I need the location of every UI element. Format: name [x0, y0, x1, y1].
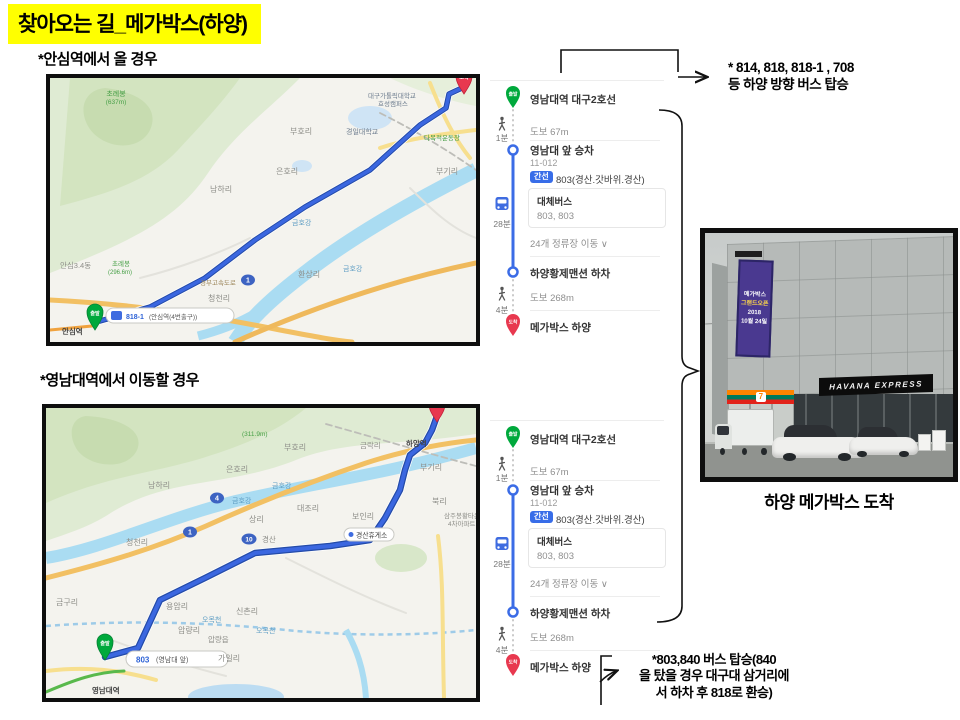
map-place-label: 다목적운동장	[424, 133, 460, 142]
transfer-note: *803,840 버스 탑승(840 을 탔을 경우 대구대 삼거리에 서 하차…	[628, 652, 800, 701]
end-pin-icon: 도착	[506, 314, 520, 336]
map-place-label: 경산	[262, 534, 276, 544]
map-place-label: 4차아파트	[448, 519, 476, 528]
map-place-label: 부기리	[420, 463, 442, 472]
map-place-label: 북리	[432, 497, 447, 506]
white-truck	[715, 409, 775, 455]
transfer-note-line1: *803,840 버스 탑승(840	[628, 652, 800, 668]
walk2-time: 4분	[488, 644, 516, 656]
bus-icon	[496, 197, 509, 210]
map1-canvas: 818-1 (안심역(4번출구)) 1 출발 도착 초례봉(637m)남하리은호…	[50, 78, 476, 342]
map-place-label: 보인리	[352, 511, 374, 521]
section-label-ansim: *안심역에서 올 경우	[38, 48, 157, 69]
map-place-label: 부호리	[284, 443, 306, 452]
transit-panel-1: 출발 도착 영남대역 대구2호선 1분 도보 67m	[488, 80, 668, 350]
svg-text:도착: 도착	[509, 659, 518, 666]
board-stop-id: 11-012	[530, 498, 557, 508]
transfer-note-line2: 을 탔을 경우 대구대 삼거리에	[628, 668, 800, 684]
transit-panel-2: 출발 도착 영남대역 대구2호선 1분 도보 67m	[488, 420, 668, 690]
map-place-label: 환상리	[298, 269, 320, 279]
svg-text:(영남대 앞): (영남대 앞)	[156, 655, 188, 664]
map-place-label: 초례봉	[106, 89, 126, 98]
destination: 메가박스 하양	[530, 320, 591, 335]
map-place-label: 삼주봉황타운	[444, 511, 476, 520]
map-place-label: 초례봉	[112, 259, 130, 268]
divider	[490, 420, 664, 421]
svg-text:도착: 도착	[432, 408, 442, 409]
walk1-distance: 도보 67m	[530, 124, 569, 138]
map-place-label: 오목천	[256, 626, 275, 635]
svg-text:10: 10	[245, 537, 253, 544]
bus-type-badge: 간선	[530, 511, 553, 523]
map-place-label: 영남대역	[92, 685, 120, 695]
map-place-label: 부호리	[290, 127, 312, 136]
alight-stop: 하양황제맨션 하차	[530, 266, 610, 281]
map-place-label: (311.9m)	[242, 431, 268, 438]
board-stop-dot	[509, 486, 518, 495]
map-place-label: 상리	[249, 514, 264, 524]
transfer-note-line3: 서 하차 후 818로 환승)	[628, 685, 800, 701]
seven-eleven-sign: 7	[727, 390, 794, 403]
slide: 찾아오는 길_메가박스(하양) *안심역에서 올 경우 *영남대역에서 이동할 …	[0, 0, 960, 720]
divider	[530, 256, 660, 257]
walk1-time: 1분	[488, 132, 516, 144]
havana-express-sign: HAVANA EXPRESS	[819, 374, 933, 396]
map-place-label: 하양역	[406, 438, 427, 448]
walk2-distance: 도보 268m	[530, 630, 574, 644]
start-pin-icon: 출발	[506, 86, 520, 108]
map-place-label: 은호리	[226, 465, 248, 474]
bus-line: 803(경산.갓바위.경산)	[556, 172, 645, 186]
map-place-label: 금구리	[56, 598, 78, 607]
board-stop-dot	[509, 146, 518, 155]
svg-text:1: 1	[188, 530, 192, 537]
map-place-label: 용암리	[166, 601, 188, 611]
alt-bus-numbers: 803, 803	[537, 211, 657, 222]
svg-text:출발: 출발	[509, 431, 518, 438]
walk-icon	[499, 117, 504, 130]
walk-icon	[499, 627, 504, 640]
svg-text:4: 4	[215, 496, 219, 503]
alight-stop-dot	[509, 268, 518, 277]
map-screenshot-ansim: 818-1 (안심역(4번출구)) 1 출발 도착 초례봉(637m)남하리은호…	[46, 74, 480, 346]
megabox-banner: 메가박스 그랜드오픈 2018 10월 24일	[736, 259, 774, 357]
alt-bus-title: 대체버스	[537, 194, 657, 208]
page-title: 찾아오는 길_메가박스(하양)	[8, 4, 261, 44]
divider	[530, 650, 660, 651]
map-place-label: 금호강	[232, 496, 252, 505]
map-place-label: 대조리	[297, 504, 319, 513]
map-place-label: 청천리	[208, 293, 230, 303]
map2-bus-bubble: 803 (영남대 앞)	[126, 651, 228, 667]
map1-highway-shield: 1	[241, 275, 255, 286]
banner-line: 메가박스	[744, 291, 766, 298]
divider	[530, 596, 660, 597]
bus-numbers-note: * 814, 818, 818-1 , 708 등 하양 방향 버스 탑승	[728, 60, 854, 94]
map-screenshot-yeungnam: 4 1 10 경산휴게소 803 (영남대 앞) 출발	[42, 404, 480, 702]
map-place-label: 남하리	[210, 184, 232, 194]
map-place-label: 경부고속도로	[200, 278, 236, 287]
alt-bus-numbers: 803, 803	[537, 551, 657, 562]
walk2-time: 4분	[488, 304, 516, 316]
map-place-label: 안심3.4동	[60, 260, 91, 270]
banner-line: 2018	[748, 309, 762, 315]
alt-bus-card: 대체버스 803, 803	[528, 528, 666, 568]
ride-time: 28분	[488, 558, 516, 570]
map-place-label: 금락리	[360, 441, 381, 450]
map-place-label: 압량읍	[208, 635, 229, 644]
map-place-label: 남하리	[148, 480, 170, 490]
bus-numbers-note-line1: * 814, 818, 818-1 , 708	[728, 60, 854, 77]
bus-numbers-note-line2: 등 하양 방향 버스 탑승	[728, 77, 854, 94]
board-stop: 영남대 앞 승차	[530, 483, 594, 498]
callout-line-top	[561, 50, 678, 73]
walk1-time: 1분	[488, 472, 516, 484]
bus-icon	[496, 537, 509, 550]
map-place-label: 압량리	[178, 625, 200, 635]
white-car	[849, 427, 918, 458]
stops-expander[interactable]: 24개 정류장 이동 ∨	[530, 576, 608, 590]
start-station: 영남대역 대구2호선	[530, 432, 616, 447]
alt-bus-title: 대체버스	[537, 534, 657, 548]
section-label-yeungnam: *영남대역에서 이동할 경우	[40, 369, 199, 390]
divider	[490, 80, 664, 81]
map-place-label: 오목천	[202, 615, 221, 624]
map-place-label: 청천리	[126, 537, 148, 547]
svg-text:출발: 출발	[100, 639, 110, 647]
svg-text:출발: 출발	[509, 91, 518, 98]
map-place-label: 효성캠퍼스	[378, 99, 408, 108]
board-stop-id: 11-012	[530, 158, 557, 168]
map-place-label: 경일대학교	[346, 127, 379, 136]
photo-caption: 하양 메가박스 도착	[700, 488, 958, 513]
alt-bus-card: 대체버스 803, 803	[528, 188, 666, 228]
svg-text:803: 803	[136, 656, 150, 665]
stops-expander[interactable]: 24개 정류장 이동 ∨	[530, 236, 608, 250]
map-place-label: (296.6m)	[108, 270, 132, 276]
bus-type-badge: 간선	[530, 171, 553, 183]
board-stop: 영남대 앞 승차	[530, 143, 594, 158]
destination: 메가박스 하양	[530, 660, 591, 675]
start-station: 영남대역 대구2호선	[530, 92, 616, 107]
map-place-label: 금호강	[343, 264, 363, 273]
map-place-label: 신촌리	[236, 607, 258, 616]
map-place-label: 가일리	[218, 654, 240, 663]
walk-icon	[499, 287, 504, 300]
busstop-name: (안심역(4번출구))	[149, 312, 197, 321]
map-place-label: (637m)	[106, 99, 127, 106]
walk1-distance: 도보 67m	[530, 464, 569, 478]
divider	[530, 140, 660, 141]
map1-terrain	[50, 78, 476, 273]
map1-busstop-bubble: 818-1 (안심역(4번출구))	[106, 308, 234, 323]
svg-text:도착: 도착	[459, 78, 469, 81]
map-place-label: 금호강	[292, 218, 312, 227]
map2-rest-stop-badge: 경산휴게소	[344, 528, 394, 541]
start-pin-icon: 출발	[506, 426, 520, 448]
bus-line: 803(경산.갓바위.경산)	[556, 512, 645, 526]
plastic-chairs	[918, 429, 945, 451]
divider	[530, 480, 660, 481]
alight-stop: 하양황제맨션 하차	[530, 606, 610, 621]
divider	[530, 310, 660, 311]
map-place-label: 금호강	[272, 481, 292, 490]
map-place-label: 부기리	[436, 167, 458, 176]
alight-stop-dot	[509, 608, 518, 617]
svg-text:경산휴게소: 경산휴게소	[356, 531, 387, 540]
end-pin-icon: 도착	[506, 654, 520, 676]
seven-eleven-logo: 7	[756, 392, 766, 402]
ride-time: 28분	[488, 218, 516, 230]
banner-line: 그랜드오픈	[741, 300, 769, 307]
map-place-label: 대구가톨릭대학교	[368, 91, 416, 100]
banner-line: 10월 24일	[741, 318, 767, 325]
svg-text:출발: 출발	[90, 309, 100, 317]
busstop-number: 818-1	[126, 314, 144, 321]
walk-icon	[499, 457, 504, 470]
megabox-building-photo: 메가박스 그랜드오픈 2018 10월 24일 HAVANA EXPRESS 7	[700, 228, 958, 482]
map-place-label: 안심역	[62, 326, 83, 336]
svg-text:1: 1	[246, 278, 250, 285]
rooftop-strip	[735, 251, 762, 257]
walk2-distance: 도보 268m	[530, 290, 574, 304]
map-place-label: 은호리	[276, 167, 298, 176]
svg-text:도착: 도착	[509, 319, 518, 326]
map2-canvas: 4 1 10 경산휴게소 803 (영남대 앞) 출발	[46, 408, 476, 698]
